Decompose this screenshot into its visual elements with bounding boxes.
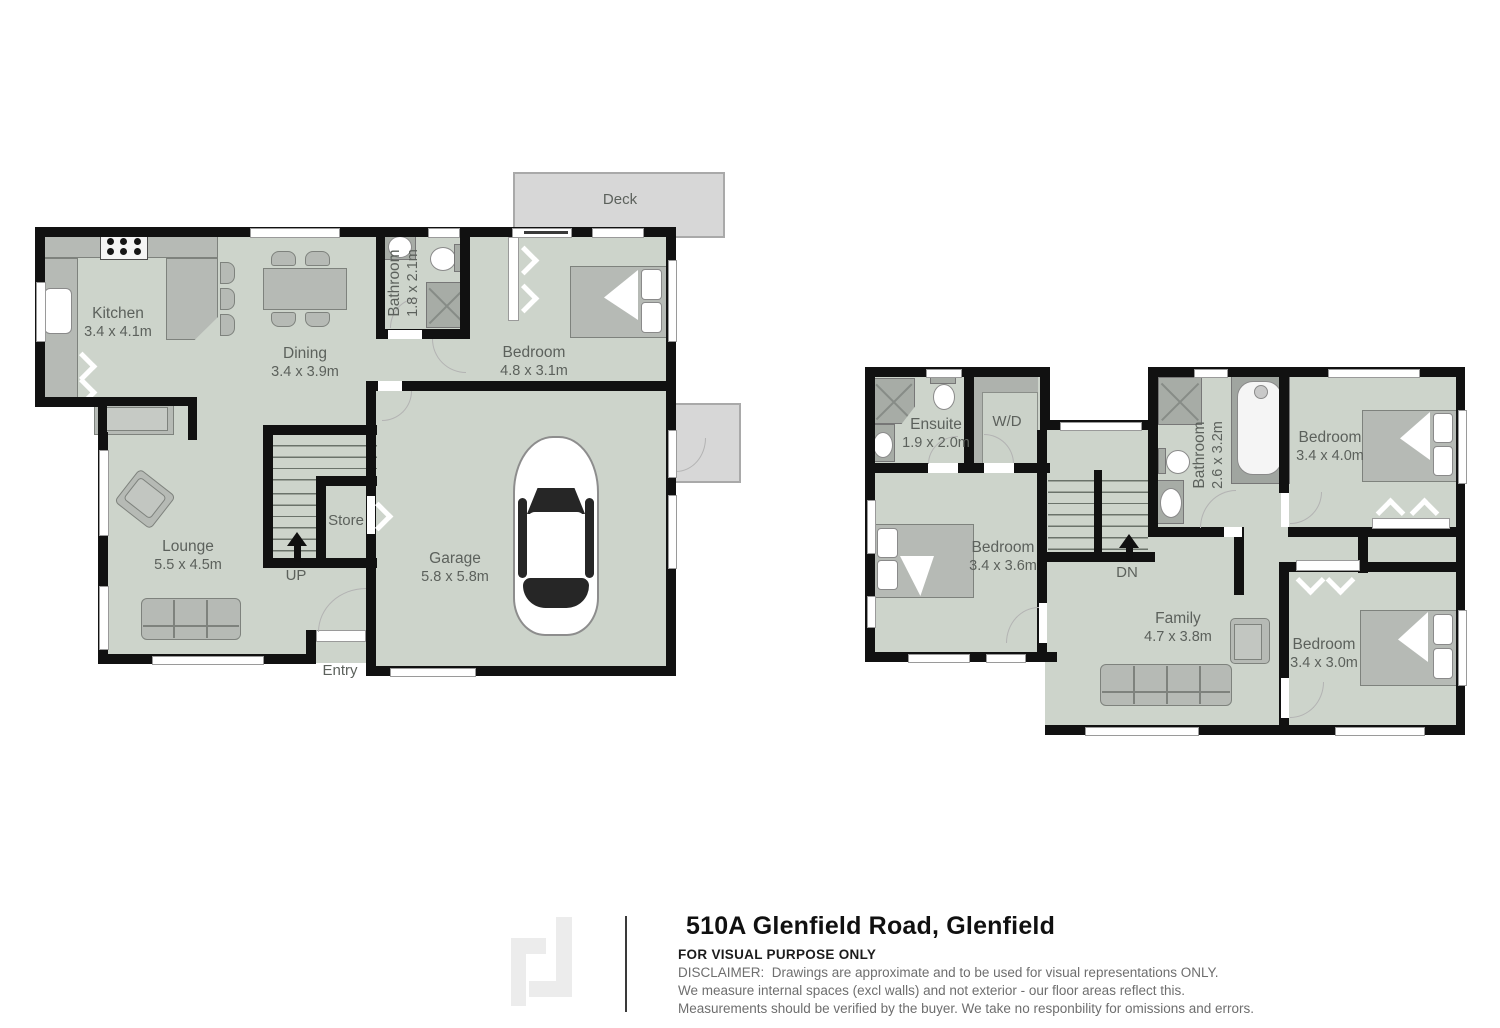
purpose-note: FOR VISUAL PURPOSE ONLY [678, 947, 876, 962]
disclaimer-line: We measure internal spaces (excl walls) … [678, 982, 1185, 1000]
sofa-seat-line [1199, 666, 1201, 704]
door-gap [378, 381, 402, 391]
brand-logo-icon [511, 938, 546, 954]
sofa-seat-line [1133, 666, 1135, 704]
room-dims: 1.8 x 2.1m [405, 223, 421, 343]
room-name: Bedroom [464, 344, 604, 361]
wall [366, 381, 676, 391]
window [867, 596, 876, 628]
pillow-icon [877, 528, 898, 558]
room-name: Bedroom [933, 539, 1073, 556]
window [428, 228, 460, 238]
window [1085, 727, 1199, 736]
pillow-icon [1433, 446, 1453, 476]
wall [1148, 367, 1158, 537]
wall [263, 425, 273, 568]
window [908, 654, 970, 663]
room-dims: 3.4 x 3.9m [235, 364, 375, 380]
room-garage-label: Garage 5.8 x 5.8m [385, 550, 525, 586]
hall-floor [1155, 535, 1288, 565]
room-store-label: Store [306, 512, 386, 529]
room-kitchen-label: Kitchen 3.4 x 4.1m [48, 305, 188, 341]
room-lounge-label: Lounge 5.5 x 4.5m [118, 538, 258, 574]
window [152, 656, 264, 665]
wall [263, 425, 377, 435]
window [36, 282, 46, 342]
car-roof [527, 512, 585, 578]
slider-door-bar [524, 231, 568, 234]
door-gap [984, 463, 1014, 473]
room-dining-label: Dining 3.4 x 3.9m [235, 345, 375, 381]
room-name: Bathroom [1191, 395, 1208, 515]
room-name: Garage [385, 550, 525, 567]
window [1060, 422, 1142, 431]
wardrobe-rail [1372, 518, 1450, 529]
door-gap [1224, 527, 1242, 537]
bar-stool-icon [220, 314, 235, 336]
window [867, 500, 876, 554]
room-dims: 5.8 x 5.8m [385, 569, 525, 585]
sofa-back-line [143, 625, 239, 627]
window [592, 228, 644, 238]
up-arrow-shaft [294, 546, 301, 562]
fireplace-inner [102, 407, 168, 431]
wardrobe-rail [508, 237, 519, 321]
door-gap [1281, 493, 1289, 527]
door-gap [928, 463, 958, 473]
room-dims: 3.4 x 4.1m [48, 324, 188, 340]
pillow-icon [1433, 413, 1453, 443]
car-side-window [585, 498, 594, 578]
room-bedroom-bottom-label: Bedroom 3.4 x 3.0m [1254, 636, 1394, 672]
dining-chair-icon [271, 251, 296, 266]
window [926, 369, 962, 378]
wall [460, 227, 470, 335]
window [1194, 369, 1228, 378]
bathroom-sink-bowl-icon [1160, 488, 1182, 518]
room-name: Kitchen [48, 305, 188, 322]
wall [376, 227, 385, 339]
room-dims: 3.4 x 4.0m [1260, 448, 1400, 464]
room-bedroom-label: Bedroom 4.8 x 3.1m [464, 344, 604, 380]
sofa-seat-line [173, 600, 175, 638]
brand-logo-icon [529, 981, 572, 997]
room-name: Bathroom [386, 223, 403, 343]
entry-label: Entry [300, 662, 380, 679]
stove-icon [100, 233, 148, 260]
room-dims: 3.4 x 3.0m [1254, 655, 1394, 671]
disclaimer-line: Measurements should be verified by the b… [678, 1000, 1254, 1018]
room-dims: 3.4 x 3.6m [933, 558, 1073, 574]
door-gap [1281, 678, 1289, 718]
address-title: 510A Glenfield Road, Glenfield [686, 912, 1055, 941]
window [668, 495, 677, 569]
toilet-icon [1166, 450, 1190, 474]
room-dims: 1.9 x 2.0m [866, 435, 1006, 451]
toilet-icon [933, 384, 955, 410]
window [1458, 610, 1467, 686]
room-family-label: Family 4.7 x 3.8m [1108, 610, 1248, 646]
dining-chair-icon [271, 312, 296, 327]
dining-chair-icon [305, 251, 330, 266]
deck-label: Deck [550, 191, 690, 208]
wall [1234, 527, 1244, 595]
window [250, 228, 340, 238]
window [986, 654, 1026, 663]
window [668, 260, 677, 342]
window [390, 668, 476, 677]
sofa-seat-line [206, 600, 208, 638]
toilet-icon [430, 247, 456, 271]
room-bedroom-top-label: Bedroom 3.4 x 4.0m [1260, 429, 1400, 465]
room-bedroom-left-label: Bedroom 3.4 x 3.6m [933, 539, 1073, 575]
floorplan-page: Deck [0, 0, 1500, 1028]
car-rear-window [523, 578, 589, 608]
wall [188, 397, 197, 440]
room-wd-label: W/D [967, 413, 1047, 430]
sofa-icon [141, 598, 241, 640]
up-label: UP [266, 567, 326, 584]
room-bathroom-upper-label: Bathroom 2.6 x 3.2m [1191, 395, 1231, 515]
wall [35, 227, 676, 237]
pillow-icon [877, 560, 898, 590]
wardrobe-rail [1296, 560, 1360, 571]
bar-stool-icon [220, 288, 235, 310]
pillow-icon [641, 269, 662, 300]
window [1335, 727, 1425, 736]
room-dims: 5.5 x 4.5m [118, 557, 258, 573]
window [99, 450, 109, 536]
disclaimer-line: DISCLAIMER: Drawings are approximate and… [678, 964, 1219, 982]
toilet-tank-icon [1158, 448, 1166, 474]
room-name: Dining [235, 345, 375, 362]
door-gap [1039, 603, 1047, 643]
room-name: Family [1108, 610, 1248, 627]
bar-stool-icon [220, 262, 235, 284]
room-dims: 2.6 x 3.2m [1210, 395, 1226, 515]
wall [35, 397, 107, 407]
wall [98, 397, 197, 406]
room-name: Bedroom [1260, 429, 1400, 446]
bathtub-faucet-icon [1254, 385, 1268, 399]
pillow-icon [1433, 648, 1453, 679]
window [1328, 369, 1420, 378]
wall [306, 630, 316, 664]
dining-chair-icon [305, 312, 330, 327]
dn-label: DN [1097, 564, 1157, 581]
window [1458, 410, 1467, 484]
dining-table-icon [263, 268, 347, 310]
sofa-back-line [1102, 691, 1230, 693]
room-dims: 4.7 x 3.8m [1108, 629, 1248, 645]
stair-divider [1094, 470, 1102, 554]
down-arrow-shaft [1126, 548, 1133, 562]
room-bathroom-label: Bathroom 1.8 x 2.1m [386, 223, 426, 343]
window [668, 430, 677, 478]
room-name: Bedroom [1254, 636, 1394, 653]
window [99, 586, 109, 650]
pillow-icon [641, 302, 662, 333]
sofa-seat-line [1166, 666, 1168, 704]
footer-divider [625, 916, 627, 1012]
room-name: Lounge [118, 538, 258, 555]
room-dims: 4.8 x 3.1m [464, 363, 604, 379]
pillow-icon [1433, 614, 1453, 645]
